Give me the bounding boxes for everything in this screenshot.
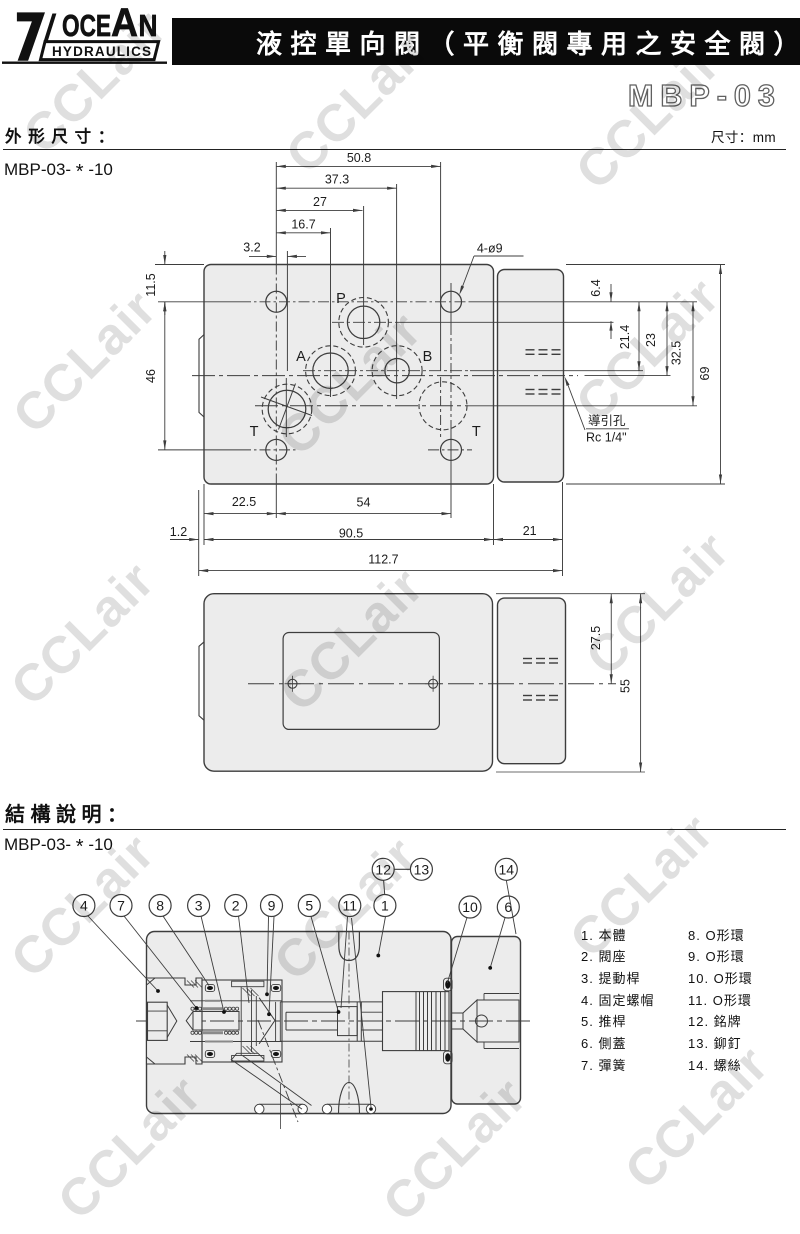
svg-text:16.7: 16.7 <box>291 217 315 231</box>
svg-text:1.2: 1.2 <box>170 525 187 539</box>
svg-text:14: 14 <box>499 861 515 877</box>
svg-text:T: T <box>250 424 259 440</box>
svg-text:9: 9 <box>268 898 276 914</box>
svg-text:11.5: 11.5 <box>144 273 158 296</box>
svg-text:21: 21 <box>523 524 537 538</box>
svg-text:4-ø9: 4-ø9 <box>477 241 503 255</box>
svg-text:54: 54 <box>357 496 371 510</box>
svg-text:50.8: 50.8 <box>347 151 371 165</box>
svg-text:90.5: 90.5 <box>339 526 363 540</box>
svg-text:69: 69 <box>698 367 712 381</box>
svg-text:10: 10 <box>462 899 478 915</box>
svg-text:22.5: 22.5 <box>232 495 256 509</box>
svg-text:3: 3 <box>195 898 203 914</box>
svg-text:27: 27 <box>313 195 327 209</box>
svg-text:A: A <box>296 349 306 365</box>
svg-text:46: 46 <box>144 369 158 383</box>
svg-text:T: T <box>472 424 481 440</box>
svg-text:P: P <box>336 291 346 307</box>
svg-text:6.4: 6.4 <box>589 279 603 296</box>
svg-text:3.2: 3.2 <box>243 241 260 255</box>
svg-text:37.3: 37.3 <box>325 173 349 187</box>
svg-text:8: 8 <box>156 898 164 914</box>
svg-text:2: 2 <box>232 898 240 914</box>
